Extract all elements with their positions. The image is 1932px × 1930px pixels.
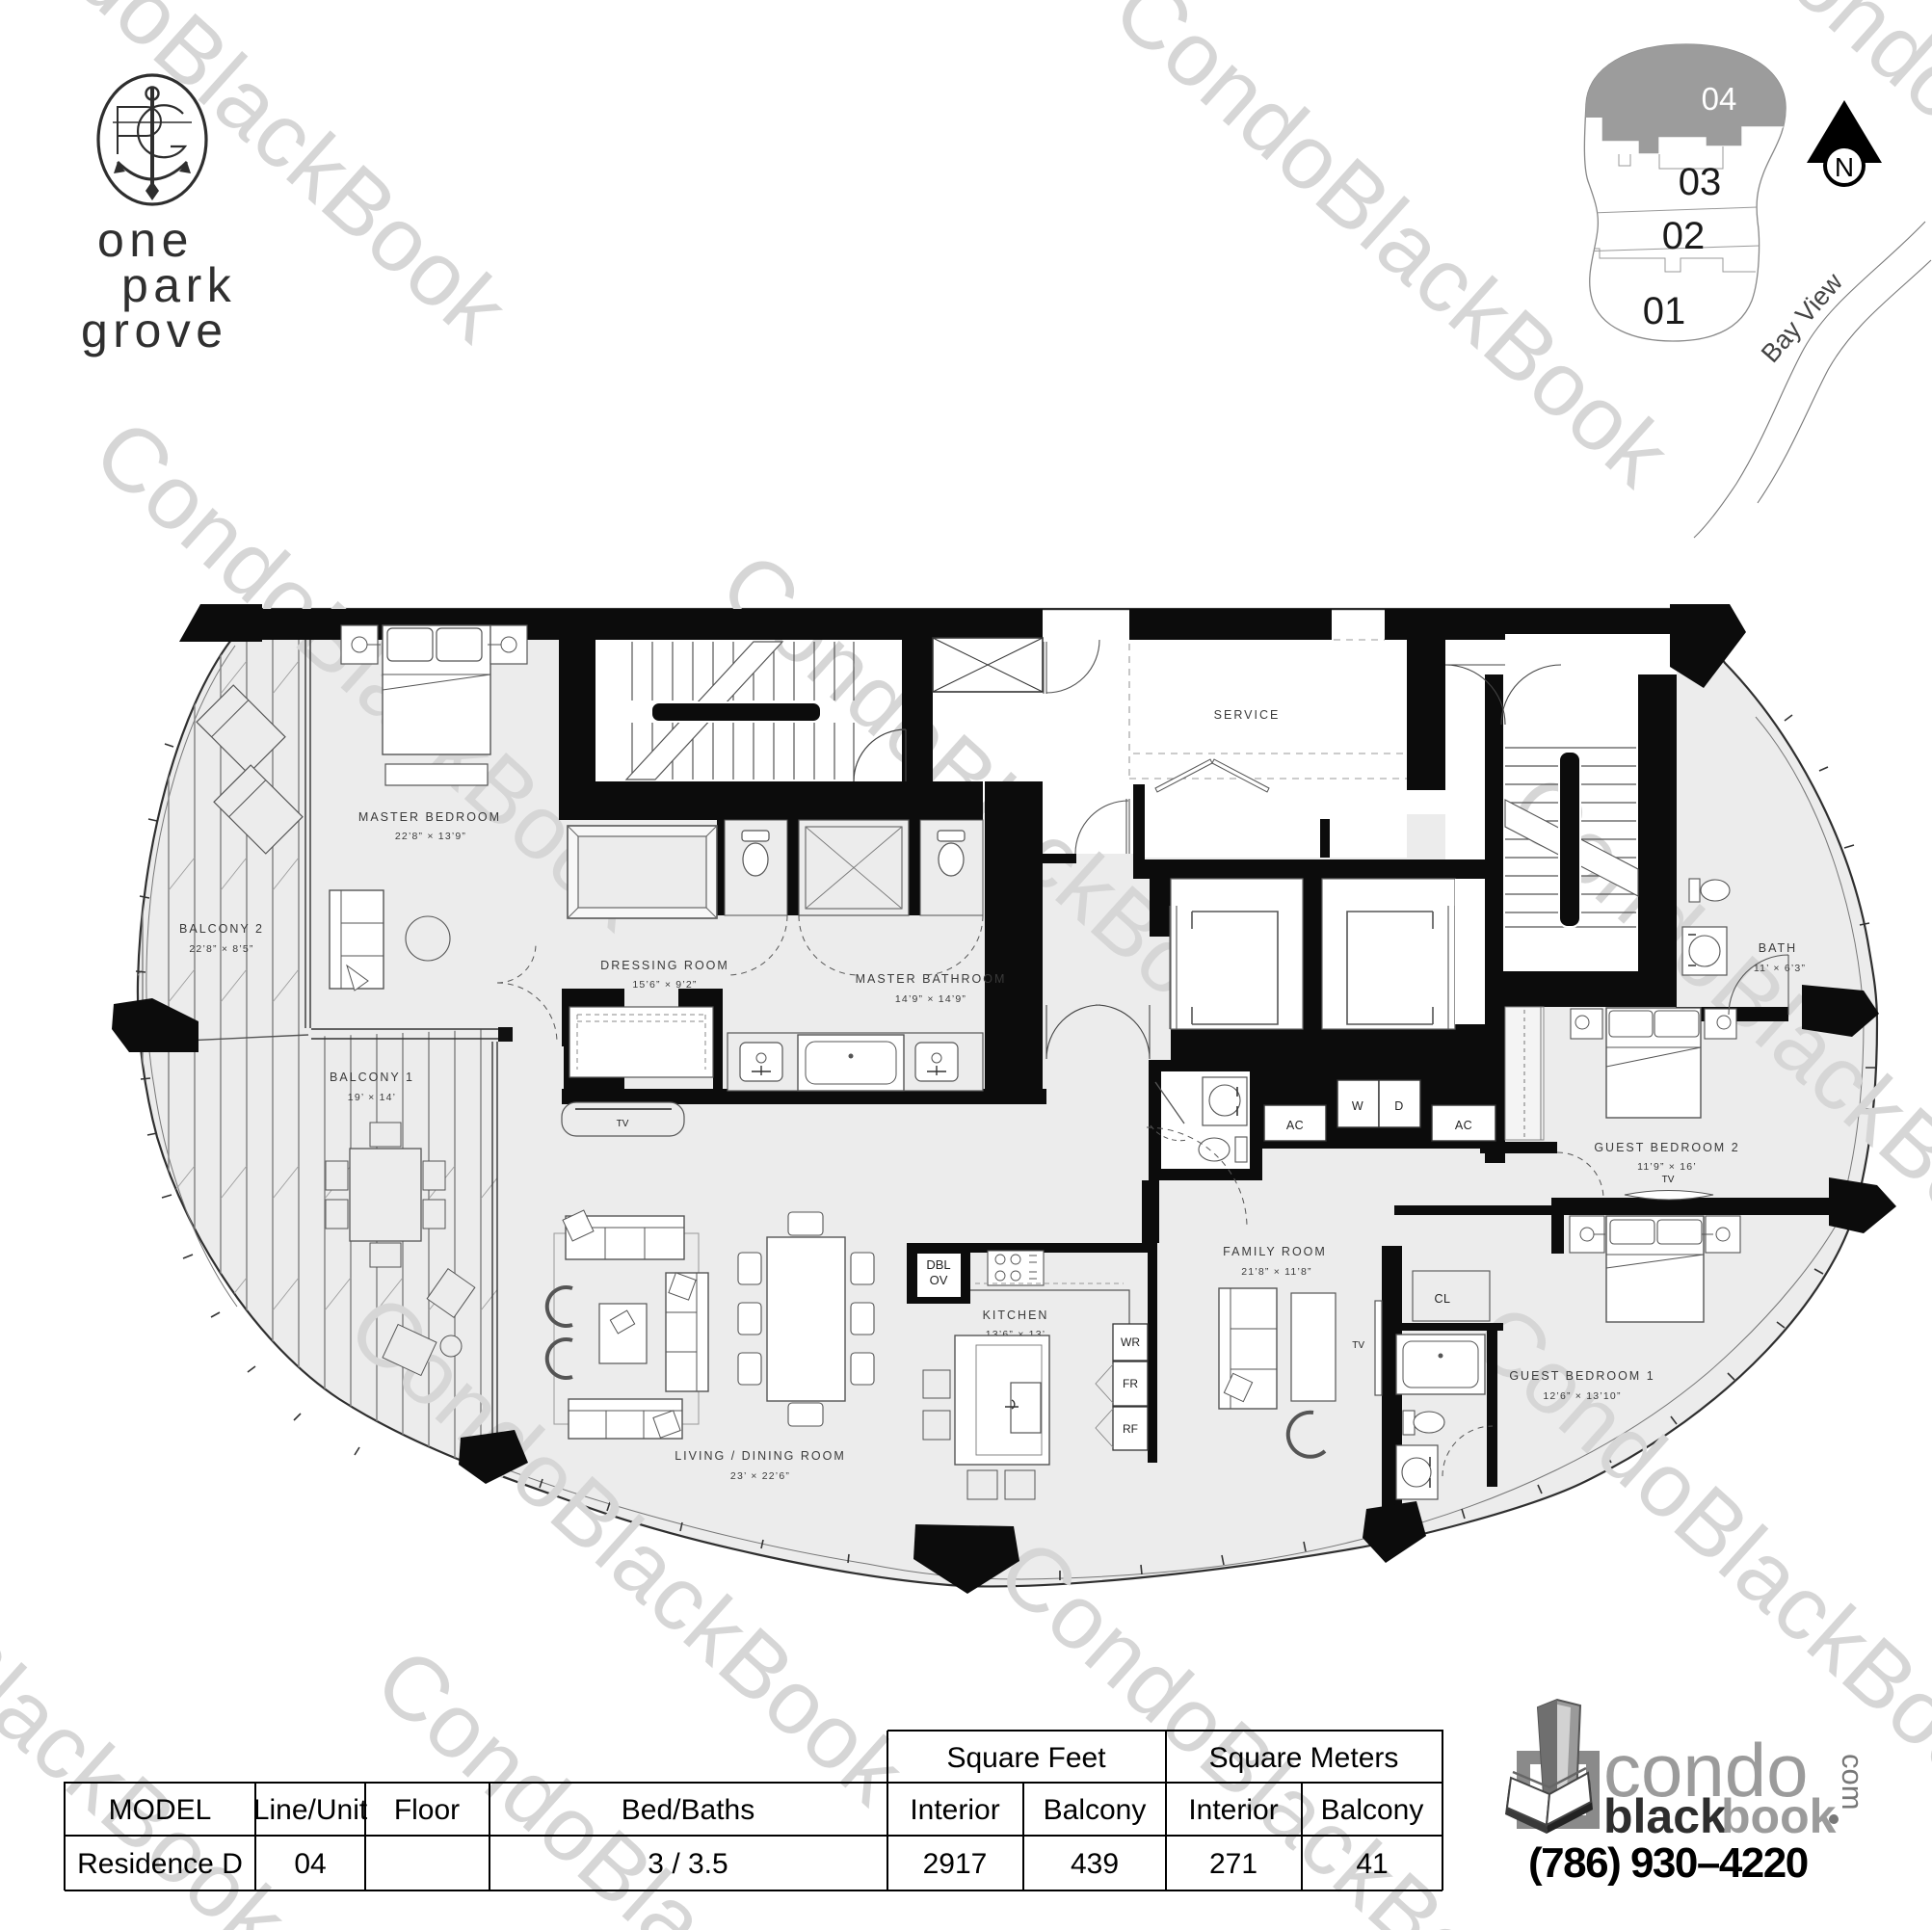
- svg-text:KITCHEN: KITCHEN: [983, 1309, 1049, 1322]
- svg-text:BATH: BATH: [1759, 941, 1797, 955]
- svg-text:Balcony: Balcony: [1321, 1794, 1424, 1826]
- svg-text:WR: WR: [1121, 1335, 1140, 1349]
- svg-text:12’6” × 13’10”: 12’6” × 13’10”: [1543, 1390, 1621, 1402]
- svg-text:21’8” × 11’8”: 21’8” × 11’8”: [1241, 1266, 1311, 1278]
- svg-text:TV: TV: [1352, 1340, 1364, 1351]
- svg-text:DBL: DBL: [926, 1257, 950, 1272]
- svg-text:2917: 2917: [923, 1848, 988, 1880]
- svg-text:BALCONY 1: BALCONY 1: [330, 1071, 414, 1084]
- svg-text:22’8” × 8’5”: 22’8” × 8’5”: [189, 943, 253, 955]
- svg-text:W: W: [1352, 1099, 1363, 1113]
- svg-text:Square Feet: Square Feet: [946, 1742, 1106, 1774]
- svg-text:OV: OV: [930, 1273, 948, 1287]
- svg-text:Interior: Interior: [1188, 1794, 1278, 1826]
- svg-text:MODEL: MODEL: [109, 1794, 212, 1826]
- svg-text:439: 439: [1071, 1848, 1119, 1880]
- svg-text:04: 04: [1702, 81, 1737, 117]
- svg-text:Square Meters: Square Meters: [1209, 1742, 1399, 1774]
- svg-text:CL: CL: [1435, 1292, 1451, 1306]
- svg-text:GUEST BEDROOM 2: GUEST BEDROOM 2: [1594, 1141, 1739, 1154]
- svg-text:41: 41: [1356, 1848, 1388, 1880]
- svg-text:SERVICE: SERVICE: [1214, 708, 1281, 722]
- svg-text:GUEST BEDROOM 1: GUEST BEDROOM 1: [1509, 1369, 1654, 1383]
- svg-text:TV: TV: [1662, 1175, 1675, 1185]
- svg-text:271: 271: [1209, 1848, 1257, 1880]
- svg-text:Floor: Floor: [394, 1794, 460, 1826]
- svg-text:11’9” × 16’: 11’9” × 16’: [1637, 1161, 1697, 1173]
- svg-text:grove: grove: [81, 304, 228, 357]
- svg-text:MASTER BEDROOM: MASTER BEDROOM: [358, 810, 501, 824]
- svg-text:MASTER BATHROOM: MASTER BATHROOM: [856, 972, 1007, 986]
- svg-text:FAMILY ROOM: FAMILY ROOM: [1223, 1245, 1327, 1258]
- svg-text:(786) 930–4220: (786) 930–4220: [1528, 1839, 1808, 1887]
- svg-text:BALCONY 2: BALCONY 2: [179, 922, 264, 936]
- svg-text:AC: AC: [1455, 1119, 1472, 1132]
- svg-text:black: black: [1603, 1789, 1727, 1843]
- svg-text:com: com: [1836, 1754, 1869, 1811]
- svg-text:D: D: [1394, 1099, 1404, 1113]
- svg-text:DRESSING ROOM: DRESSING ROOM: [600, 959, 729, 972]
- svg-text:Bed/Baths: Bed/Baths: [622, 1794, 754, 1826]
- svg-text:AC: AC: [1286, 1119, 1304, 1132]
- svg-text:04: 04: [294, 1848, 326, 1880]
- svg-text:Balcony: Balcony: [1044, 1794, 1147, 1826]
- svg-text:23’ × 22’6”: 23’ × 22’6”: [730, 1470, 790, 1482]
- svg-text:19’ × 14’: 19’ × 14’: [348, 1092, 396, 1103]
- svg-text:Line/Unit: Line/Unit: [253, 1794, 368, 1826]
- svg-text:RF: RF: [1123, 1422, 1138, 1436]
- svg-text:Interior: Interior: [910, 1794, 999, 1826]
- svg-text:03: 03: [1679, 161, 1722, 203]
- svg-text:15’6” × 9’2”: 15’6” × 9’2”: [632, 979, 697, 991]
- svg-text:3 / 3.5: 3 / 3.5: [648, 1848, 728, 1880]
- svg-text:N: N: [1835, 152, 1854, 182]
- svg-text:TV: TV: [617, 1119, 629, 1129]
- svg-text:14’9” × 14’9”: 14’9” × 14’9”: [895, 993, 966, 1005]
- svg-text:01: 01: [1643, 290, 1686, 332]
- svg-text:book: book: [1721, 1789, 1837, 1843]
- svg-text:11’ × 6’3”: 11’ × 6’3”: [1754, 963, 1806, 974]
- svg-text:02: 02: [1662, 215, 1706, 257]
- svg-text:LIVING / DINING ROOM: LIVING / DINING ROOM: [675, 1449, 846, 1463]
- svg-text:FR: FR: [1123, 1377, 1138, 1390]
- svg-text:22’8” × 13’9”: 22’8” × 13’9”: [395, 831, 466, 842]
- svg-text:Residence D: Residence D: [77, 1848, 243, 1880]
